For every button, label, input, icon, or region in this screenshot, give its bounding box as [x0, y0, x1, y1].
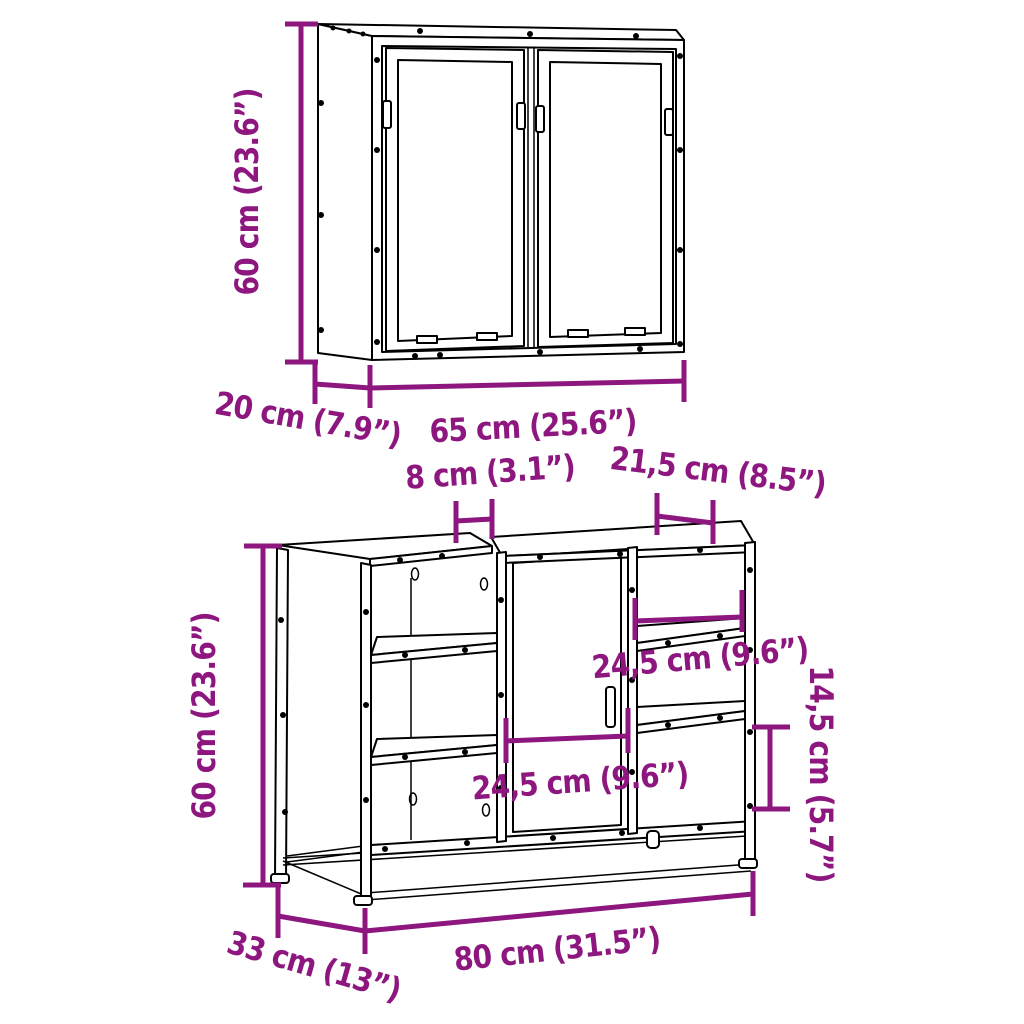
furniture-line-art: [0, 0, 1024, 1024]
mirror-cabinet-drawing: [318, 24, 684, 360]
door-handle-icon: [606, 687, 615, 727]
dimension-diagram: 60 cm (23.6”) 20 cm (7.9”) 65 cm (25.6”)…: [0, 0, 1024, 1024]
sink-cabinet-drawing: [271, 521, 757, 905]
sink-compartment-height-label: 14,5 cm (5.7”): [802, 666, 840, 883]
sink-height-label: 60 cm (23.6”): [185, 612, 223, 819]
mirror-height-label: 60 cm (23.6”): [228, 88, 266, 295]
